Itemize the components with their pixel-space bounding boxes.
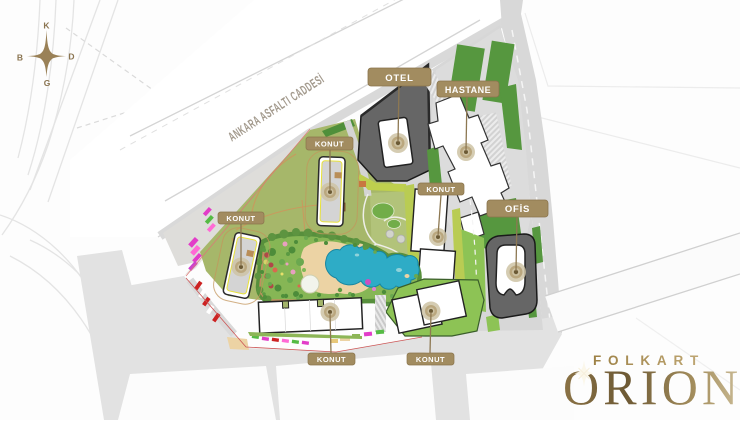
svg-text:OTEL: OTEL <box>385 73 414 84</box>
svg-text:ORION: ORION <box>563 359 740 415</box>
svg-text:KONUT: KONUT <box>317 355 346 364</box>
svg-text:D: D <box>68 52 74 62</box>
svg-text:KONUT: KONUT <box>315 140 344 149</box>
svg-text:K: K <box>43 21 50 31</box>
svg-text:KONUT: KONUT <box>226 214 255 223</box>
svg-text:B: B <box>17 53 23 63</box>
svg-text:G: G <box>44 78 51 88</box>
svg-text:KONUT: KONUT <box>416 355 445 364</box>
svg-text:KONUT: KONUT <box>426 185 455 194</box>
svg-text:HASTANE: HASTANE <box>445 85 491 95</box>
svg-text:OFİS: OFİS <box>505 204 530 215</box>
